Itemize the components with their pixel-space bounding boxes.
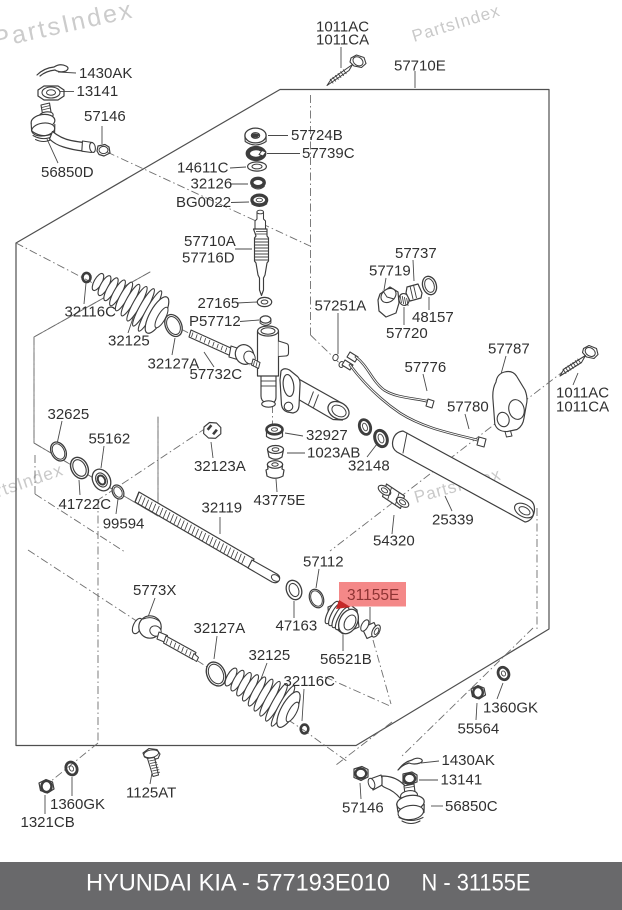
- svg-text:57112: 57112: [303, 554, 344, 571]
- svg-text:32126: 32126: [191, 176, 233, 193]
- svg-text:56850D: 56850D: [41, 164, 94, 181]
- svg-text:57146: 57146: [84, 108, 126, 125]
- svg-text:57724B: 57724B: [291, 127, 343, 144]
- svg-text:48157: 48157: [412, 309, 454, 326]
- svg-text:57710E: 57710E: [394, 58, 446, 75]
- svg-text:55564: 55564: [458, 721, 500, 738]
- svg-text:57776: 57776: [405, 359, 447, 376]
- svg-text:32625: 32625: [48, 406, 90, 423]
- svg-text:56850C: 56850C: [445, 798, 498, 815]
- svg-text:1430AK: 1430AK: [442, 752, 495, 769]
- svg-text:99594: 99594: [103, 516, 145, 533]
- svg-text:47163: 47163: [276, 618, 318, 635]
- svg-text:1360GK: 1360GK: [50, 796, 105, 813]
- svg-text:32148: 32148: [348, 458, 390, 475]
- svg-text:32123A: 32123A: [194, 458, 246, 475]
- svg-text:57787: 57787: [488, 341, 530, 358]
- svg-text:56521B: 56521B: [320, 651, 372, 668]
- svg-text:57737: 57737: [395, 245, 437, 262]
- svg-text:32116C: 32116C: [65, 304, 117, 321]
- svg-text:54320: 54320: [373, 533, 415, 550]
- svg-text:32116C: 32116C: [284, 673, 336, 690]
- svg-text:43775E: 43775E: [254, 492, 306, 509]
- svg-text:32125: 32125: [249, 647, 291, 664]
- svg-text:57716D: 57716D: [182, 250, 235, 267]
- svg-text:57739C: 57739C: [302, 145, 355, 162]
- svg-text:1360GK: 1360GK: [483, 700, 538, 717]
- svg-text:57710A: 57710A: [184, 233, 236, 250]
- svg-text:14611C: 14611C: [177, 160, 229, 177]
- svg-text:25339: 25339: [432, 512, 474, 529]
- svg-text:1011CA: 1011CA: [316, 32, 369, 49]
- svg-text:57719: 57719: [369, 263, 411, 280]
- svg-text:32125: 32125: [108, 333, 150, 350]
- svg-text:1011CA: 1011CA: [556, 399, 609, 416]
- svg-text:13141: 13141: [441, 772, 483, 789]
- svg-text:27165: 27165: [198, 295, 240, 312]
- svg-text:13141: 13141: [77, 83, 119, 100]
- svg-text:41722C: 41722C: [59, 496, 112, 513]
- svg-text:BG0022: BG0022: [176, 194, 231, 211]
- svg-text:31155E: 31155E: [347, 587, 399, 604]
- svg-text:1125AT: 1125AT: [126, 785, 176, 802]
- svg-text:55162: 55162: [89, 431, 131, 448]
- svg-text:57780: 57780: [447, 399, 489, 416]
- svg-text:32927: 32927: [306, 427, 348, 444]
- svg-text:5773X: 5773X: [133, 582, 176, 599]
- svg-text:32119: 32119: [202, 500, 243, 517]
- svg-text:1430AK: 1430AK: [79, 65, 132, 82]
- svg-text:N - 31155E: N - 31155E: [422, 870, 531, 897]
- svg-text:57146: 57146: [342, 800, 384, 817]
- svg-text:HYUNDAI KIA - 577193E010: HYUNDAI KIA - 577193E010: [86, 870, 390, 897]
- svg-text:57732C: 57732C: [190, 366, 243, 383]
- svg-text:57251A: 57251A: [315, 298, 367, 315]
- svg-text:32127A: 32127A: [194, 620, 246, 637]
- svg-text:1321CB: 1321CB: [21, 814, 75, 831]
- svg-text:P57712: P57712: [189, 313, 241, 330]
- svg-text:57720: 57720: [386, 325, 428, 342]
